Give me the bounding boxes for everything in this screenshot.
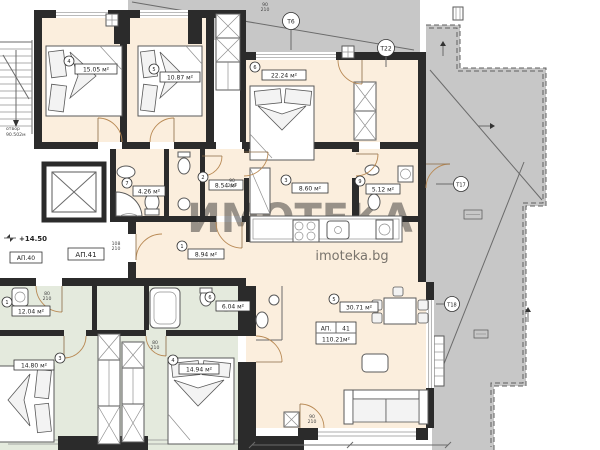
door-dim: 108210 <box>112 241 121 252</box>
svg-text:АП.40: АП.40 <box>17 255 35 262</box>
svg-text:5: 5 <box>152 67 155 73</box>
bed <box>46 46 122 116</box>
stair-note: отвор <box>6 127 20 132</box>
watermark-small: imoteka.bg <box>315 249 388 264</box>
svg-text:4: 4 <box>67 59 70 65</box>
apartment-40-tag: АП.40 <box>10 252 42 263</box>
wardrobe <box>216 14 240 90</box>
svg-text:9: 9 <box>358 179 361 185</box>
apartment-number: 41 <box>342 326 350 333</box>
svg-text:6: 6 <box>208 295 211 301</box>
svg-text:+14.50: +14.50 <box>19 235 47 243</box>
svg-text:АП.41: АП.41 <box>75 251 96 259</box>
svg-text:Т22: Т22 <box>379 46 391 53</box>
shaft-strip <box>434 336 444 386</box>
wardrobe <box>98 334 120 444</box>
chimney-icon <box>453 7 463 20</box>
svg-text:14.80 м²: 14.80 м² <box>21 363 48 370</box>
svg-text:3: 3 <box>58 356 61 362</box>
washer <box>12 288 28 306</box>
floor-plan-svg: ИМОТЕКА imoteka.bg <box>0 0 600 450</box>
wardrobe <box>122 342 144 442</box>
svg-text:3: 3 <box>284 178 287 184</box>
apartment-title-block: АП. 41 110.21м² <box>316 322 356 344</box>
flue-icon <box>342 46 354 58</box>
svg-text:8.60 м²: 8.60 м² <box>299 186 322 193</box>
svg-text:Т6: Т6 <box>286 19 295 26</box>
staircase: отвор 90.502м <box>0 40 32 138</box>
shaft-box <box>284 412 299 427</box>
svg-text:5.12 м²: 5.12 м² <box>372 187 395 194</box>
svg-text:Т17: Т17 <box>455 183 465 189</box>
stair-note: 90.502м <box>6 132 26 138</box>
svg-text:1: 1 <box>180 244 183 250</box>
svg-text:6: 6 <box>253 65 256 71</box>
svg-text:1: 1 <box>5 300 8 306</box>
svg-text:22.24 м²: 22.24 м² <box>271 73 298 80</box>
svg-text:15.05 м²: 15.05 м² <box>83 67 110 74</box>
svg-text:4.26 м²: 4.26 м² <box>138 189 161 196</box>
elevator-shaft <box>44 164 104 220</box>
wardrobe <box>354 82 376 140</box>
flue-icon <box>106 14 118 26</box>
svg-text:2: 2 <box>201 175 204 181</box>
svg-text:Т18: Т18 <box>446 303 456 309</box>
svg-text:14.94 м²: 14.94 м² <box>186 367 213 374</box>
apartment-area: 110.21м² <box>322 337 351 344</box>
svg-text:12.04 м²: 12.04 м² <box>18 309 45 316</box>
svg-text:30.71 м²: 30.71 м² <box>346 305 373 312</box>
apartment-prefix: АП. <box>321 326 332 333</box>
stair-direction-arrow-icon <box>13 50 19 127</box>
floor-plan-drawing: ИМОТЕКА imoteka.bg <box>0 0 600 450</box>
svg-text:7: 7 <box>125 181 128 187</box>
svg-text:6.04 м²: 6.04 м² <box>222 304 245 311</box>
svg-text:8.94 м²: 8.94 м² <box>195 252 218 259</box>
svg-text:4: 4 <box>171 358 174 364</box>
svg-text:5: 5 <box>332 297 335 303</box>
bed <box>0 366 54 442</box>
level-mark: +14.50 <box>4 234 47 243</box>
bed <box>250 86 314 160</box>
apartment-41-tag: АП.41 <box>68 248 104 260</box>
svg-text:10.87 м²: 10.87 м² <box>167 75 194 82</box>
svg-text:108210: 108210 <box>112 241 121 252</box>
